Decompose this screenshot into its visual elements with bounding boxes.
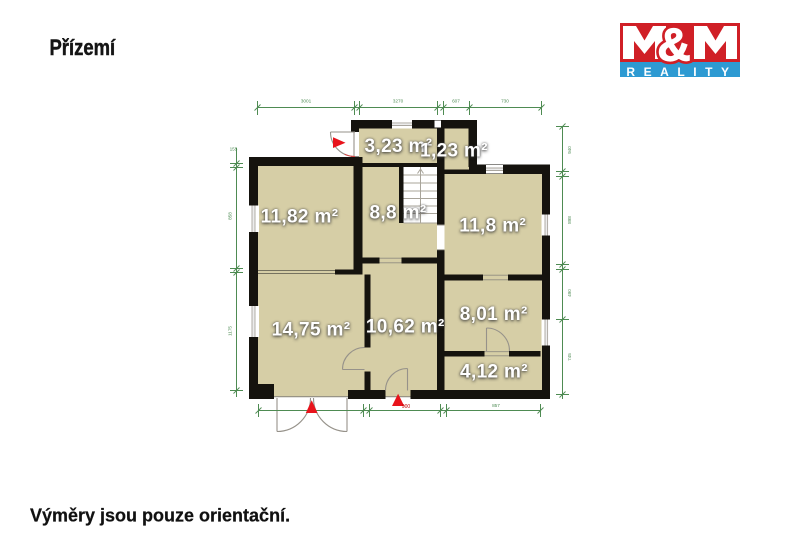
svg-text:8,8 m²: 8,8 m² bbox=[369, 203, 426, 224]
svg-text:10,62 m²: 10,62 m² bbox=[366, 316, 445, 337]
svg-text:155: 155 bbox=[230, 147, 238, 152]
svg-text:857: 857 bbox=[492, 403, 500, 408]
svg-text:&: & bbox=[657, 23, 690, 70]
svg-text:898: 898 bbox=[567, 216, 572, 224]
svg-text:Přízemí: Přízemí bbox=[50, 37, 117, 61]
svg-text:3001: 3001 bbox=[301, 99, 312, 104]
svg-text:3270: 3270 bbox=[393, 99, 404, 104]
svg-text:Výměry jsou pouze orientační.: Výměry jsou pouze orientační. bbox=[30, 506, 290, 526]
svg-text:858: 858 bbox=[228, 212, 233, 220]
svg-text:11,82 m²: 11,82 m² bbox=[261, 207, 339, 228]
svg-text:745: 745 bbox=[567, 353, 572, 361]
svg-text:607: 607 bbox=[452, 99, 460, 104]
svg-text:1,23 m²: 1,23 m² bbox=[420, 141, 488, 162]
svg-text:940: 940 bbox=[567, 146, 572, 154]
svg-text:900: 900 bbox=[402, 404, 411, 410]
svg-text:11,8 m²: 11,8 m² bbox=[459, 215, 526, 236]
svg-text:14,75 m²: 14,75 m² bbox=[272, 320, 351, 341]
svg-text:4,12 m²: 4,12 m² bbox=[460, 361, 528, 382]
svg-text:1175: 1175 bbox=[228, 326, 233, 336]
svg-text:8,01 m²: 8,01 m² bbox=[460, 304, 528, 325]
svg-text:730: 730 bbox=[501, 99, 509, 104]
svg-text:490: 490 bbox=[567, 289, 572, 297]
